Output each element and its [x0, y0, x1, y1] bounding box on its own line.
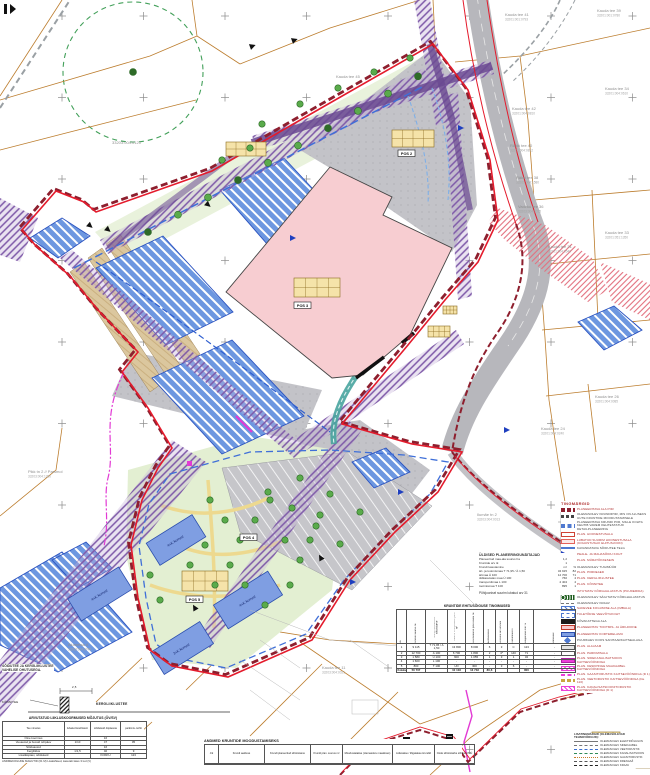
table-header-cell: Korruselisus [484, 610, 496, 644]
traffic-table-note: ANDMEKOGUDE MAHUTID (01 M) Lisatähised, … [2, 760, 144, 763]
legend-item-label: PLAN. KERGLIIKLUSTEE [577, 577, 614, 580]
parcel-label: Kauda tee 31 [548, 244, 573, 249]
parcel-label: Kauda tee 33 [605, 230, 630, 235]
table-cell: Lisatäispäev, sõidukeid [3, 754, 65, 758]
table-footer-cell: 13 733 [466, 668, 484, 672]
table-footer-row: Kokku50 70710 10313 73380,6800 [397, 668, 576, 672]
parcel-label: Räkki tee 40 [510, 143, 533, 148]
pos-label: POS 2 [401, 152, 412, 156]
formation-table-holder: JrkKrundi aadressKrundi planeeritud siht… [204, 744, 462, 765]
parcel-code: 33201:001:0793 [505, 18, 528, 22]
table-header-cell: Krundi kasutamise sihtotstarve [426, 610, 448, 644]
legend-item-label: KÕVAKATTEGA ALA [577, 620, 607, 623]
sw-maghatch-swatch-icon [561, 686, 575, 691]
stats-cell: 895 [550, 585, 567, 589]
parcel-label: Ilumäe tn 2 [477, 512, 498, 517]
table-header-cell: Suurim ehitisealune pind m² [448, 610, 466, 644]
sw-magdash-swatch-icon [561, 674, 575, 676]
sw-treesd-swatch-icon [561, 595, 575, 600]
legend-item: PLAN. VEETORUSTIK KAITSEVÖÖNDIGA (De 110… [561, 678, 650, 684]
line-style-swatch-icon [574, 765, 598, 766]
table-cell [265, 764, 311, 765]
table-row: 19 115T 71,95 / Ä 1,5013 8008 00063C123- [397, 644, 576, 652]
parcel-label: Räkki tee 38 [516, 175, 539, 180]
legend-item-label: PLAN. KESKPINGE MAAKAABEL KAITSEVÖÖNDIGA [577, 665, 650, 671]
table-row [205, 764, 475, 765]
pos-label: POS 5 [189, 598, 200, 602]
parcel-label: Vadaku tee 36 [518, 204, 544, 209]
sw-areapiir-swatch-icon [561, 508, 575, 513]
table-footer-cell: 80,6 [484, 668, 496, 672]
table-cell: 3 [496, 644, 508, 652]
parcel-code: 33201:004:0610 [605, 92, 628, 96]
extra-legend-item: OLEMASOLEV KRAAV [574, 764, 650, 767]
extra-legend-items: OLEMASOLEV ELEKTRIÕHULIINOLEMASOLEV SIDE… [574, 740, 650, 767]
line-style-swatch-icon [574, 745, 598, 746]
parcel-code: 33201:004:0085 [595, 400, 618, 404]
table-header-cell: parkimis- kohti [121, 722, 147, 737]
legend-item: OLEMASOLEV SÄILITATAV KÕRGHALJASTUS [561, 595, 650, 600]
line-style-swatch-icon [574, 753, 598, 754]
parcel-code: 33203:004:0021 [322, 671, 345, 675]
table-cell: T 71,95 / Ä 1,50 [426, 644, 448, 652]
table-cell: 123 [121, 754, 147, 758]
line-style-swatch-icon [574, 761, 598, 762]
legend-item-label: KAVANDATAVA SÕIDUTEE TELG [577, 547, 625, 550]
table-header-cell: Hoonealune pind kokku m² [466, 610, 484, 644]
table-header-cell: Parkimiskohti [508, 610, 520, 644]
legend-item-label: PLAN. KANALISATSIOONITORUSTIK KAITSEVÖÖN… [577, 686, 650, 692]
table-cell: KOKKU [91, 754, 121, 758]
table-cell [393, 764, 435, 765]
traffic-table-holder: Tee nimetuslubatud koefitsientsõidukeid … [2, 721, 144, 759]
legend-item: PLANEERITAVA ALA PIIR [561, 508, 650, 513]
section-left-label: KÕNNITEE [2, 700, 18, 704]
table-footer-cell [534, 668, 576, 672]
table-header-cell: Hoonete arv krundil [496, 610, 508, 644]
data-table: JrkKrundi aadressKrundi planeeritud siht… [204, 744, 475, 765]
legend-item: PLAN. GAASITORUSTIK KAITSEVÖÖNDIGA (D 1) [561, 673, 650, 676]
table-cell [65, 754, 91, 758]
section-dimension: 2,5 [72, 685, 77, 689]
stats-cell: tootmismaa T 100 [479, 585, 550, 589]
section-note-line2: VAHELISE OHUTUSEGA. [2, 668, 54, 672]
parcel-code: 33203:004:0740 [68, 648, 91, 652]
parcel-code: 33201:004:0240 [541, 432, 564, 436]
table-header-cell: Krundi suurus m² [407, 610, 426, 644]
legend-item-label: PLAN. ALAJAAM [577, 645, 601, 648]
legend-item-label: PLANEERITAVA ALA PIIR [577, 508, 614, 511]
table-cell [219, 764, 265, 765]
legend-item-label: PLAN. KÕNNITEE [577, 583, 603, 586]
parcel-label: Kauda tee 26 [595, 394, 620, 399]
traffic-table: ARVUTATUD LIIKLUSKOORMUSED MÕJUTUS (ÖV/S… [2, 716, 144, 763]
table-header-cell: Jrk [397, 610, 407, 644]
table-cell: 13 800 [448, 644, 466, 652]
parcel-code: 33201:004:0812 [510, 149, 533, 153]
legend-item-label: ISTUTATAV KÕRGHALJASTUS (PUUDERIDA) [577, 590, 644, 593]
legend-item-label: LUBATUD SUURIM HOONESTUSALA (KOHUSTUSLIK… [577, 539, 650, 545]
table-footer-cell: 50 707 [407, 668, 426, 672]
extra-legend-panel: LISATINGMÄRGID (OLEMASOLEVAD TEHNOVÕRGUD… [574, 733, 650, 768]
legend-item-label: PUURKAEV KOOS SANITAARKAITSEALAGA [577, 639, 643, 642]
sw-hoone2-swatch-icon [561, 539, 575, 544]
table-row: Lisatäispäev, sõidukeidKOKKU123 [3, 754, 147, 758]
stats-cell: 1 [567, 585, 576, 589]
table-cell [343, 764, 393, 765]
legend-item: PLAN. HOONESTUSALA [561, 532, 650, 537]
legend-item-label: PLAN. GAASITORUSTIK KAITSEVÖÖNDIGA (D 1) [577, 673, 650, 676]
table-header-cell: Moodustatakse (olemasolev maaüksus) [343, 745, 393, 764]
table-header-cell: Liidetakse / lõigatakse krundid [393, 745, 435, 764]
table-header-cell: Märkused [534, 610, 576, 644]
table-cell: C [508, 644, 520, 652]
sw-sinine-swatch-icon [561, 524, 575, 528]
legend-item-label: TULETÕRJE VEEVÕTUKOHT [577, 613, 620, 616]
sw-dashes-swatch-icon [561, 603, 575, 604]
data-table: JrkKrundi suurus m²Krundi kasutamise sih… [396, 609, 576, 673]
table-header-cell: Oode sihtotstarbe sihtkood MÜ [435, 745, 475, 764]
table-footer-cell [508, 668, 520, 672]
table-header-cell: Jrk [205, 745, 219, 764]
pos-label: POS 3 [297, 304, 308, 308]
legend-item: OLEMASOLEV KRUNDIPIIR, MIS ON ALUSEKS UU… [561, 513, 650, 519]
legend-item-label: PEALE- JA MAHASÕIDU KOHT [577, 553, 622, 556]
section-label: KERGLIIKLUSTEE [96, 702, 128, 706]
plan-map-sheet: Kauda tee 4133201:001:0793Kauda tee 3933… [0, 0, 650, 775]
table-header-cell: Haljastuse min % [520, 610, 534, 644]
parcel-label: Kauda tee 41 [505, 12, 530, 17]
table-cell: 6 [484, 644, 496, 652]
table-header-cell: Krundi plan. suurus m² [311, 745, 343, 764]
table-cell: 8 000 [466, 644, 484, 652]
building-table-holder: JrkKrundi suurus m²Krundi kasutamise sih… [396, 609, 558, 673]
table-cell [205, 764, 219, 765]
building-rights-table: KRUNTIDE EHITUSÕIGUSE TINGIMUSED JrkKrun… [396, 604, 558, 673]
parcel-code: 33203:004:0013 [477, 518, 500, 522]
building-table-title: KRUNTIDE EHITUSÕIGUSE TINGIMUSED [396, 604, 558, 608]
legend-item-label: PLANEERITAV KORTERELAMU [577, 633, 623, 636]
legend-item-label: SADEVEE KOGUMISE ALA (IMBALA) [577, 607, 631, 610]
parcel-label: Kauda tee 42 [512, 106, 537, 111]
table-cell: 9 115 [407, 644, 426, 652]
parcel-code: 33201:004:0540 [548, 250, 571, 254]
line-style-swatch-icon [574, 741, 598, 742]
legend-item-label: PLANEERITAVA KRUNDI PIIR, MILLE KOHTA KE… [577, 521, 650, 531]
legend-item: KAVANDATAVA SÕIDUTEE TELG [561, 547, 650, 550]
parcel-label: Kauda tee 34 [605, 86, 630, 91]
parcel-label: 33203:004:0120 [112, 140, 142, 145]
line-style-swatch-icon [574, 749, 598, 750]
sw-krundipiir-swatch-icon [561, 515, 575, 519]
table-cell: 1 [397, 644, 407, 652]
legend-item-label: OLEMASOLEV KRAAV [577, 602, 610, 605]
stats-footnote: Põhijoonisel suurim lubatud arv 31 [479, 591, 576, 595]
legend-item-label: OLEMASOLEV TUGIMÜÜR [577, 566, 616, 569]
table-header-cell: sõidukeid ööpäevas [91, 722, 121, 737]
parcel-code: 33201:004:0810 [512, 112, 535, 116]
extra-legend-item-label: OLEMASOLEV KRAAV [600, 764, 629, 767]
traffic-table-title: ARVUTATUD LIIKLUSKOORMUSED MÕJUTUS (ÖV/S… [2, 716, 144, 720]
legend-item-label: PLAN. PARKIMISALA [577, 652, 608, 655]
legend-item-label: PLANEERITAV TOOTMIS- JA ÄRIHOONE [577, 626, 637, 629]
stats-rows: Planeeritud maa-ala suurus ha1,2Kruntide… [479, 558, 576, 589]
pos-label: POS 4 [243, 536, 255, 540]
table-cell [435, 764, 475, 765]
section-note: SÕIDUTEE JA KERGLIIKLUSTEE VAHELISE OHUT… [2, 664, 54, 672]
table-cell: 123 [520, 644, 534, 652]
legend-item-label: PLAN. PIIRDEAED [577, 571, 604, 574]
table-footer-cell [496, 668, 508, 672]
table-footer-cell: 10 103 [448, 668, 466, 672]
legend-item-label: PLAN. VEETORUSTIK KAITSEVÖÖNDIGA (De 110… [577, 678, 650, 684]
stats-row: tootmismaa T 1008951 [479, 585, 576, 589]
parcel-code: 33201:004:1580 [516, 181, 539, 185]
plan-statistics-panel: ÜLDISED PLANEERINGUNÄITAJAD Planeeritud … [479, 553, 576, 595]
table-header-cell: Krundi aadress [219, 745, 265, 764]
parcel-label: Alumetsa 4 [68, 642, 89, 647]
parcel-code: 33203:004:0035 [518, 210, 541, 214]
sw-ydash-swatch-icon [561, 679, 575, 682]
plot-formation-table: ANDMED KRUNTIDE MOODUSTAMISEKS JrkKrundi… [204, 739, 462, 765]
sw-hoone-swatch-icon [561, 532, 575, 537]
parcel-label: Kauda tee 45 [336, 74, 361, 79]
legend-item: PLAN. KANALISATSIOONITORUSTIK KAITSEVÖÖN… [561, 686, 650, 692]
data-table: Tee nimetuslubatud koefitsientsõidukeid … [2, 721, 147, 759]
legend-title: TINGMÄRGID [561, 501, 650, 506]
legend-item-label: PLAN. HOONESTUSALA [577, 533, 613, 536]
table-footer-cell: 800 [520, 668, 534, 672]
table-footer-cell: Kokku [397, 668, 407, 672]
legend-item-label: PLAN. SIDEKANALISATSIOON KAITSEVÖÖNDIGA [577, 657, 650, 663]
parcel-label: Kauda tee 11 [322, 665, 346, 670]
legend-item: LUBATUD SUURIM HOONESTUSALA (KOHUSTUSLIK… [561, 539, 650, 545]
table-header-cell: Krundi planeeritud sihtotstarve [265, 745, 311, 764]
table-cell: - [534, 644, 576, 652]
parcel-label: Kauda tee 24 [541, 426, 566, 431]
line-style-swatch-icon [574, 757, 598, 758]
parcel-label: Pikk tn 2 // Parsmol [28, 469, 63, 474]
table-header-cell: lubatud koefitsient [65, 722, 91, 737]
legend-item: PLANEERITAVA KRUNDI PIIR, MILLE KOHTA KE… [561, 521, 650, 531]
legend-item-label: OLEMASOLEV SÄILITATAV KÕRGHALJASTUS [577, 596, 645, 599]
table-cell [311, 764, 343, 765]
formation-table-title: ANDMED KRUNTIDE MOODUSTAMISEKS [204, 739, 462, 743]
table-header-cell: Tee nimetus [3, 722, 65, 737]
parcel-code: 33201:001:0780 [597, 14, 620, 18]
parcel-label: Kauda tee 39 [597, 8, 622, 13]
legend-item-label: OLEMASOLEV KRUNDIPIIR, MIS ON ALUSEKS UU… [577, 513, 650, 519]
parcel-code: 33201:051:1350 [605, 236, 628, 240]
table-footer-cell [426, 668, 448, 672]
sw-line-swatch-icon [561, 547, 575, 549]
parcel-code: 33203:004:1280 [28, 475, 51, 479]
legend-item-label: PLAN. MÜRATÕKKESEIN [577, 559, 614, 562]
legend-item: OLEMASOLEV KRAAV [561, 602, 650, 605]
